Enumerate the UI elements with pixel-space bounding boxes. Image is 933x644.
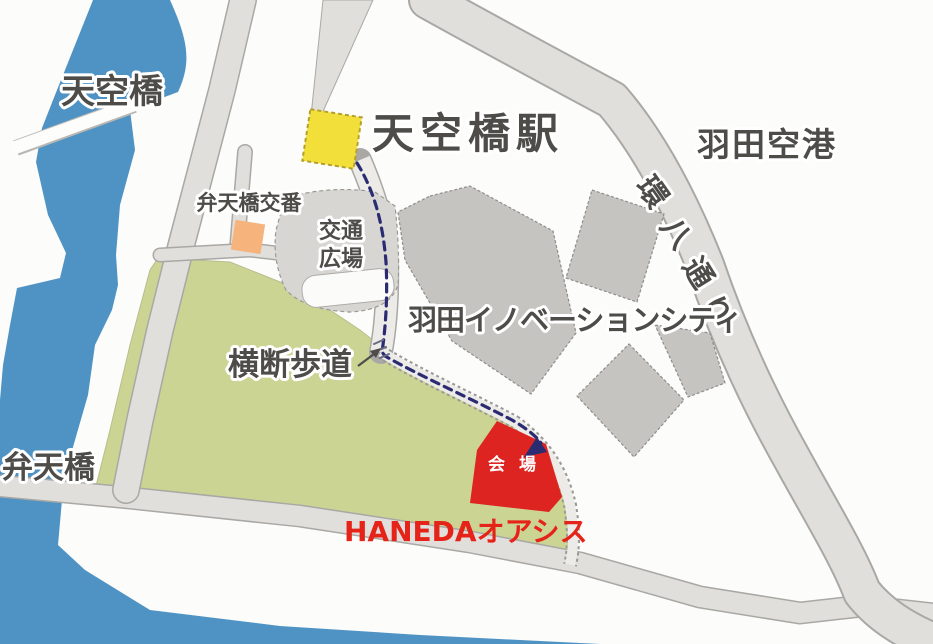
- label-tenkubashi-station: 天空橋駅: [372, 109, 564, 158]
- station-marker: [302, 109, 361, 168]
- label-innovation-city: 羽田イノベーションシティ: [408, 303, 742, 337]
- plaza-label-line2: 広場: [319, 246, 363, 272]
- label-bentenbashi-koban: 弁天橋交番: [197, 191, 303, 215]
- label-haneda-airport: 羽田空港: [697, 125, 837, 164]
- map-canvas: 天空橋 天空橋駅 羽田空港 環 八 通 り 弁天橋交番 交通 広場 羽田イノベー…: [0, 0, 933, 644]
- label-tenkubashi: 天空橋: [61, 72, 163, 112]
- innovation-city-building-1: [398, 186, 576, 394]
- label-crosswalk: 横断歩道: [228, 347, 352, 383]
- police-box-marker: [231, 220, 265, 254]
- label-venue: 会 場: [488, 454, 540, 475]
- map-svg: 天空橋 天空橋駅 羽田空港 環 八 通 り 弁天橋交番 交通 広場 羽田イノベー…: [0, 0, 933, 644]
- label-haneda-oasis: HANEDAオアシス: [344, 515, 587, 548]
- label-bentenbashi: 弁天橋: [2, 450, 96, 486]
- plaza-label-line1: 交通: [319, 218, 363, 244]
- innovation-city-building-3: [577, 344, 684, 457]
